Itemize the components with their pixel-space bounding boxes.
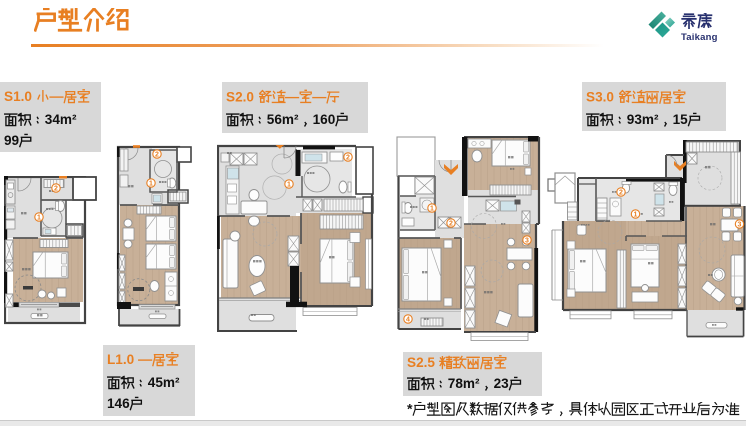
svg-text:S3.0: S3.0 — [586, 90, 614, 105]
svg-text:3: 3 — [525, 238, 529, 245]
svg-text:1: 1 — [37, 215, 41, 222]
svg-text:78m²: 78m² — [448, 376, 480, 391]
svg-text:45m²: 45m² — [148, 375, 180, 390]
svg-text:3: 3 — [738, 222, 742, 229]
svg-text:1: 1 — [287, 182, 291, 189]
svg-text:15: 15 — [673, 112, 689, 127]
svg-text:1: 1 — [430, 206, 434, 213]
svg-text:34m²: 34m² — [45, 112, 77, 127]
svg-text:1: 1 — [634, 212, 638, 219]
svg-text:S2.0: S2.0 — [226, 90, 254, 105]
svg-text:146: 146 — [107, 396, 130, 411]
svg-text:L1.0: L1.0 — [107, 352, 134, 367]
svg-text:2: 2 — [155, 152, 159, 159]
svg-text:1: 1 — [149, 181, 153, 188]
svg-text:2: 2 — [619, 190, 623, 197]
svg-text:2: 2 — [449, 221, 453, 228]
svg-text:99: 99 — [4, 133, 20, 148]
svg-text:56m²: 56m² — [267, 112, 299, 127]
svg-text:*: * — [407, 402, 413, 418]
svg-text:4: 4 — [406, 317, 410, 324]
svg-text:93m²: 93m² — [627, 112, 659, 127]
svg-text:23: 23 — [494, 376, 510, 391]
svg-text:S1.0: S1.0 — [4, 89, 32, 104]
svg-text:160: 160 — [313, 112, 336, 127]
svg-text:S2.5: S2.5 — [407, 355, 435, 370]
svg-text:2: 2 — [346, 155, 350, 162]
svg-text:2: 2 — [54, 186, 58, 193]
